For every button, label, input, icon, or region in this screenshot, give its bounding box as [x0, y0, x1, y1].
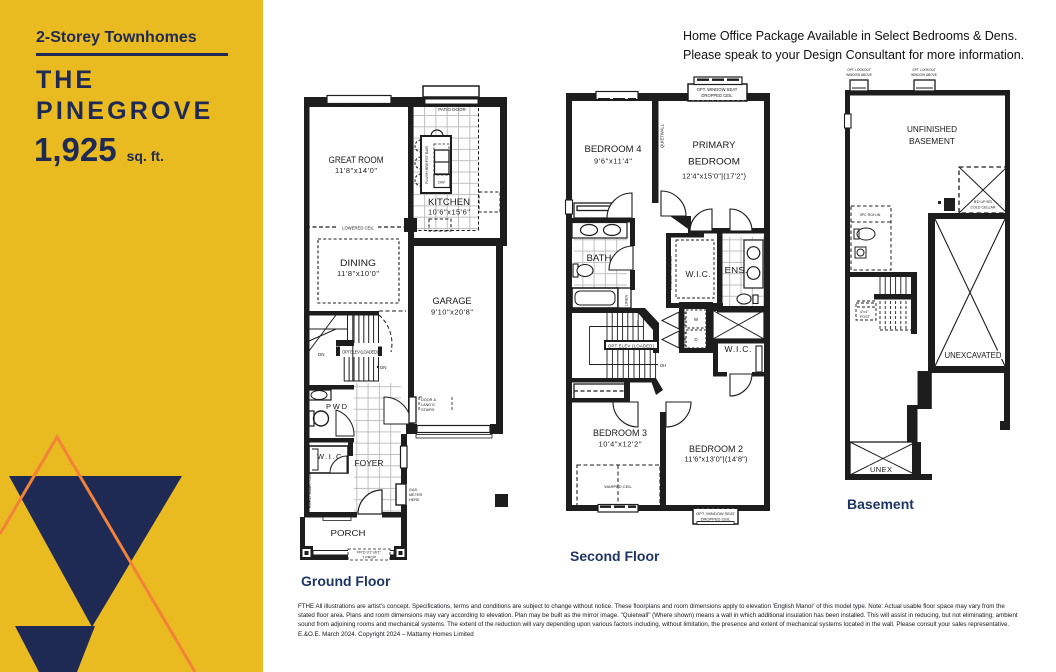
svg-text:BATH: BATH	[587, 253, 612, 263]
svg-text:KITCHEN: KITCHEN	[428, 197, 470, 208]
svg-text:GARAGE: GARAGE	[433, 296, 472, 307]
svg-text:OPT. WINDOW SEAT: OPT. WINDOW SEAT	[696, 511, 735, 516]
svg-text:4"x4": 4"x4"	[860, 310, 869, 314]
svg-text:DROPPED CEIL: DROPPED CEIL	[701, 93, 733, 98]
svg-text:DINING: DINING	[340, 258, 376, 269]
svg-text:WINDOW ABOVE: WINDOW ABOVE	[846, 73, 872, 77]
svg-text:UNFINISHED: UNFINISHED	[907, 124, 957, 134]
svg-text:LINEN: LINEN	[625, 295, 629, 306]
svg-text:QUIETWALL: QUIETWALL	[660, 123, 665, 148]
svg-text:UNEX: UNEX	[870, 465, 892, 474]
svg-text:OPT. WINDOW SEAT: OPT. WINDOW SEAT	[697, 87, 738, 92]
svg-text:PORCH: PORCH	[331, 528, 366, 538]
svg-text:GREAT ROOM: GREAT ROOM	[329, 155, 384, 166]
svg-text:DROPPED CEIL: DROPPED CEIL	[701, 517, 732, 522]
svg-text:12'4"x15'0"|(17'2"): 12'4"x15'0"|(17'2")	[682, 172, 747, 181]
svg-text:OPT. LOOKOUT: OPT. LOOKOUT	[912, 68, 936, 72]
svg-text:BEDROOM 3: BEDROOM 3	[593, 428, 647, 439]
svg-text:DW: DW	[438, 180, 445, 185]
svg-text:GAS: GAS	[409, 488, 417, 492]
svg-text:10'6"x15'6": 10'6"x15'6"	[428, 208, 470, 217]
svg-text:DOUBLE HANGING: DOUBLE HANGING	[669, 256, 673, 290]
svg-text:DN: DN	[380, 365, 387, 370]
svg-text:OPT ELEV (LOADED): OPT ELEV (LOADED)	[608, 344, 655, 349]
svg-text:D: D	[694, 337, 698, 342]
svg-text:OPT. LOOKOUT: OPT. LOOKOUT	[847, 68, 871, 72]
svg-text:W: W	[694, 317, 699, 322]
svg-text:ENS.: ENS.	[725, 265, 748, 275]
svg-text:B'D UP B'D: B'D UP B'D	[974, 200, 993, 204]
svg-text:BASEMENT: BASEMENT	[909, 136, 955, 146]
svg-text:9'6"x11'4": 9'6"x11'4"	[594, 157, 632, 166]
svg-text:METER: METER	[409, 493, 423, 497]
svg-text:FLUSH BRKFST BAR: FLUSH BRKFST BAR	[424, 146, 429, 184]
svg-text:POST: POST	[860, 315, 871, 319]
svg-text:11'8"x14'0": 11'8"x14'0"	[335, 166, 377, 175]
svg-text:OH: OH	[660, 363, 666, 368]
svg-text:STAIRS: STAIRS	[421, 408, 435, 412]
svg-text:PRIMARY: PRIMARY	[693, 140, 737, 151]
svg-text:11'8"x10'0": 11'8"x10'0"	[337, 269, 379, 278]
svg-text:W.I.C.: W.I.C.	[725, 344, 752, 354]
svg-text:11'6"x13'0"|(14'8"): 11'6"x13'0"|(14'8")	[685, 455, 749, 464]
svg-text:T PROP: T PROP	[362, 556, 377, 560]
svg-text:PATIO DOOR: PATIO DOOR	[438, 107, 466, 112]
svg-text:WARPED CEIL: WARPED CEIL	[604, 484, 632, 489]
svg-text:F: F	[948, 203, 951, 208]
svg-text:FOYER: FOYER	[355, 458, 384, 468]
svg-text:BEDROOM 4: BEDROOM 4	[585, 144, 642, 155]
svg-text:3PC RGH-IN: 3PC RGH-IN	[860, 213, 881, 217]
svg-text:UNEXCAVATED: UNEXCAVATED	[945, 351, 1002, 360]
svg-text:WINDOW ABOVE: WINDOW ABOVE	[911, 73, 937, 77]
svg-text:10'4"x12'2": 10'4"x12'2"	[599, 440, 642, 449]
svg-text:FR'D 9'1"x6'1": FR'D 9'1"x6'1"	[357, 551, 382, 555]
svg-text:LOWERED CEIL: LOWERED CEIL	[342, 226, 374, 231]
svg-text:DOOR &: DOOR &	[421, 398, 436, 402]
svg-text:9'10"x20'8": 9'10"x20'8"	[431, 308, 473, 317]
svg-text:BEDROOM 2: BEDROOM 2	[689, 444, 743, 455]
svg-text:W.I.C.: W.I.C.	[686, 269, 711, 279]
svg-text:HERE: HERE	[409, 498, 420, 502]
svg-text:BEDROOM: BEDROOM	[688, 157, 740, 168]
svg-text:COLD CELLAR: COLD CELLAR	[971, 206, 996, 210]
svg-text:PWD: PWD	[326, 402, 348, 411]
svg-text:DN: DN	[318, 352, 325, 357]
svg-text:OPT ELEV (LOADED): OPT ELEV (LOADED)	[342, 350, 379, 355]
svg-text:LAND'G: LAND'G	[421, 403, 435, 407]
